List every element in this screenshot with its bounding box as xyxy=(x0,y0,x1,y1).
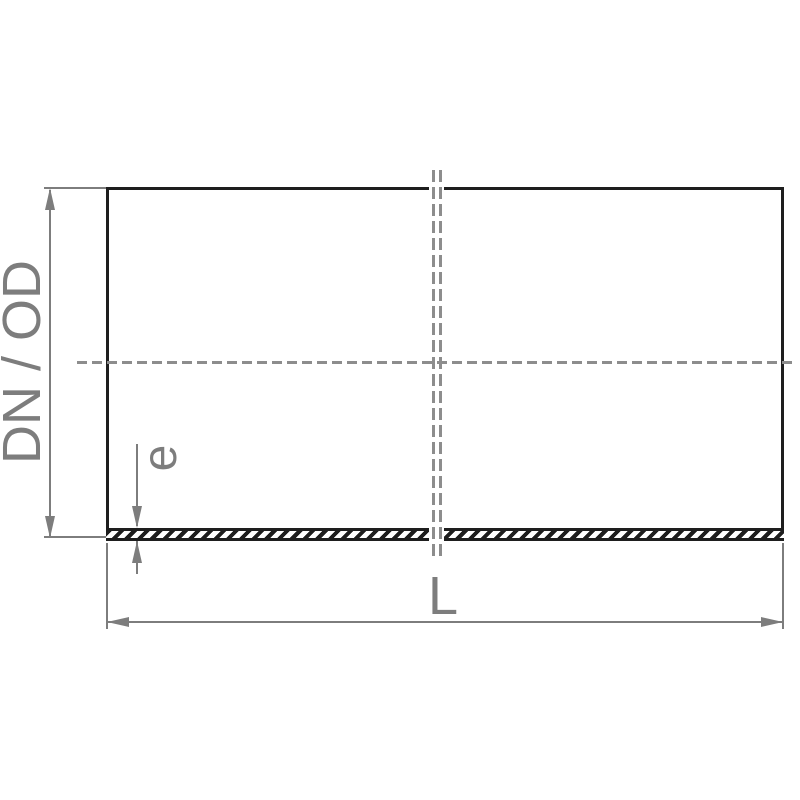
vertical-centerline-right xyxy=(439,170,442,557)
horizontal-centerline xyxy=(77,361,797,364)
pipe-dimension-drawing: DN / OD e L xyxy=(0,0,800,800)
wall-thickness-label: e xyxy=(137,445,185,472)
vertical-centerline-left xyxy=(432,170,435,557)
length-label: L xyxy=(428,569,458,623)
e-arrow-down-icon xyxy=(132,506,142,528)
length-arrow-right-icon xyxy=(761,617,783,627)
pipe-body-outline xyxy=(106,187,784,541)
length-arrow-left-icon xyxy=(107,617,129,627)
dn-od-label: DN / OD xyxy=(0,260,49,464)
e-arrow-up-icon xyxy=(132,541,142,563)
dn-od-arrow-down-icon xyxy=(45,516,55,538)
dn-od-arrow-up-icon xyxy=(45,188,55,210)
pipe-wall-hatch xyxy=(106,528,784,541)
